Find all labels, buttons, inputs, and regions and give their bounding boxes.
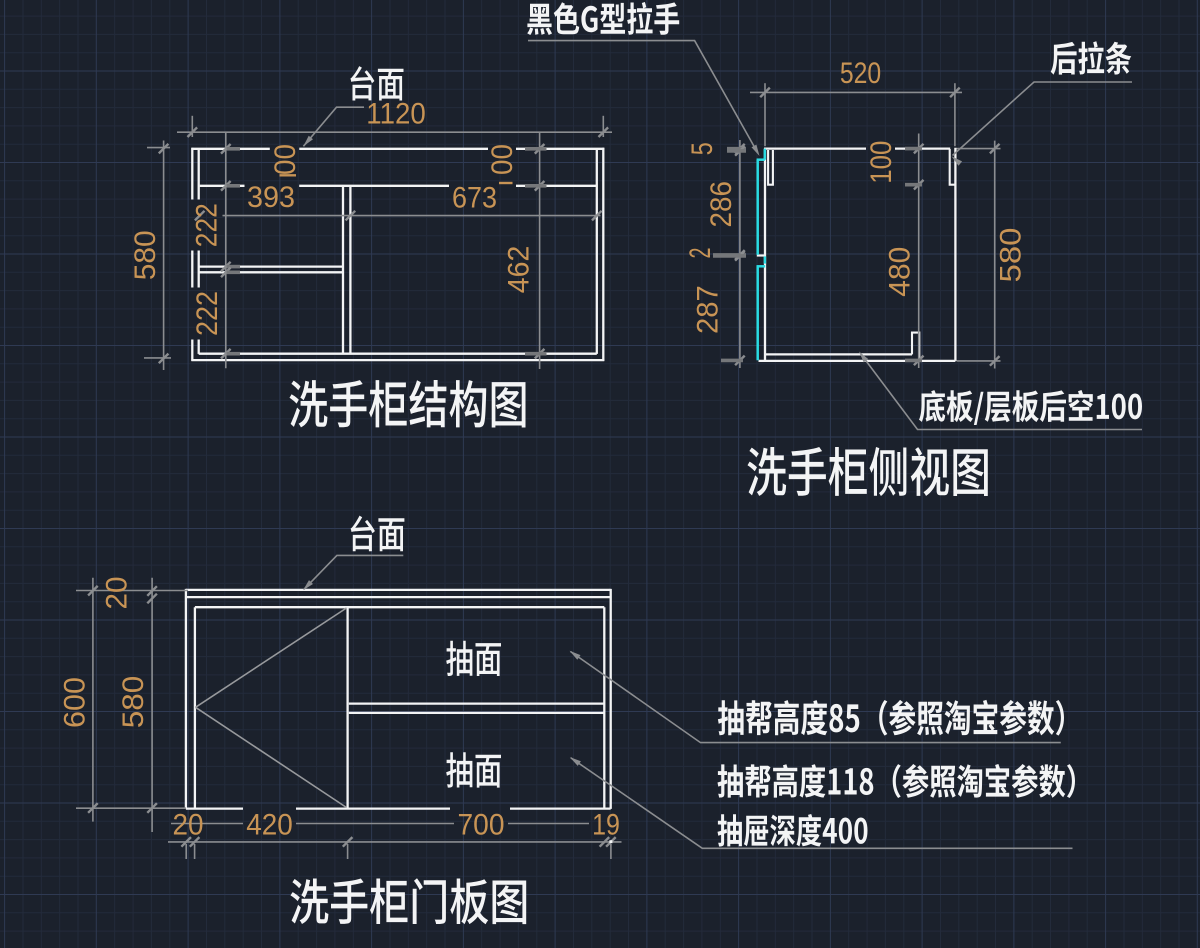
svg-text:420: 420	[246, 809, 293, 842]
svg-text:287: 287	[691, 285, 724, 334]
svg-text:222: 222	[191, 291, 224, 336]
svg-text:5: 5	[686, 142, 719, 155]
svg-text:00: 00	[269, 144, 302, 175]
svg-text:580: 580	[117, 676, 150, 729]
svg-text:673: 673	[452, 182, 497, 215]
svg-text:2: 2	[684, 248, 717, 259]
svg-text:19: 19	[592, 809, 620, 842]
svg-text:580: 580	[129, 230, 162, 280]
svg-text:286: 286	[705, 181, 738, 228]
svg-text:222: 222	[190, 203, 223, 247]
svg-text:600: 600	[58, 677, 91, 728]
svg-text:580: 580	[995, 228, 1028, 283]
svg-text:1120: 1120	[366, 97, 426, 130]
svg-text:20: 20	[173, 809, 204, 842]
svg-text:393: 393	[247, 181, 295, 214]
svg-text:480: 480	[884, 247, 917, 297]
svg-text:20: 20	[101, 577, 134, 610]
svg-text:00: 00	[486, 144, 519, 175]
svg-text:700: 700	[458, 809, 505, 842]
svg-text:100: 100	[865, 141, 898, 184]
svg-text:462: 462	[503, 246, 536, 294]
svg-text:520: 520	[840, 57, 881, 90]
